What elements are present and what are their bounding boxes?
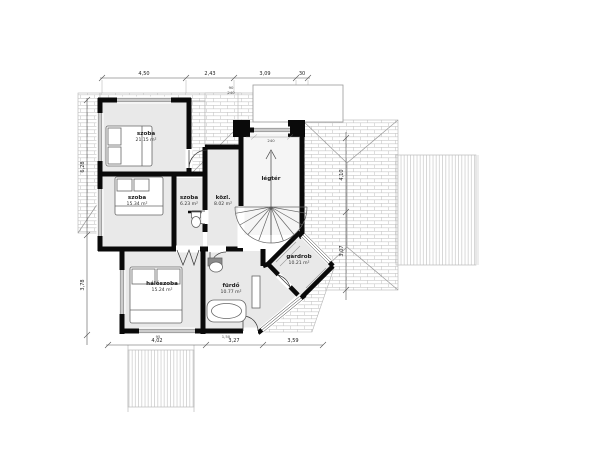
right-terrace xyxy=(396,155,476,265)
floor-plan-drawing: szoba 21.15 m² szoba 15.34 m² szoba 6.23… xyxy=(0,0,600,455)
dim-top-1: 4,50 xyxy=(138,71,149,77)
label-kozl-name: közl. xyxy=(216,195,231,201)
roof-dormer-side xyxy=(238,93,253,122)
label-legter-name: légtér xyxy=(262,175,281,182)
label-szoba1-name: szoba xyxy=(137,131,155,137)
dim-right-2: 3,07 xyxy=(339,245,345,256)
vanity-furdo xyxy=(208,258,223,272)
toilet-wc xyxy=(192,212,201,228)
bottom-terrace xyxy=(128,350,194,407)
dim-top-3: 3,09 xyxy=(259,71,270,77)
dim-bottom-3: 3,59 xyxy=(287,338,298,344)
label-szoba2-name: szoba xyxy=(128,195,146,201)
window-szoba1-left xyxy=(97,113,104,161)
label-kozl-area: 8.02 m² xyxy=(214,201,232,207)
dim-top-4: 30 xyxy=(299,71,305,77)
label-haloszoba-area: 15.24 m² xyxy=(152,287,173,293)
label-haloszoba-name: hálószoba xyxy=(146,280,178,287)
wall-pillar-right xyxy=(288,120,305,137)
label-szoba3-name: szoba xyxy=(180,195,198,201)
dim-top-2: 2,43 xyxy=(204,71,215,77)
dim-left-2: 3,78 xyxy=(80,279,86,290)
label-furdo-name: fürdő xyxy=(222,283,239,289)
label-gardrob-name: gardrob xyxy=(286,254,311,260)
floor-plan-canvas: szoba 21.15 m² szoba 15.34 m² szoba 6.23… xyxy=(0,0,600,455)
room-legter xyxy=(243,132,300,235)
window-legter-top xyxy=(254,127,290,134)
roof-dormer xyxy=(253,85,343,122)
label-szoba1-area: 21.15 m² xyxy=(136,137,157,143)
label-szoba3-area: 6.23 m² xyxy=(180,201,198,207)
window-szoba2-left xyxy=(97,189,104,236)
bathtub xyxy=(207,300,246,322)
radiator xyxy=(252,276,260,308)
window-szoba1-top xyxy=(117,97,171,104)
mark-legter-window: 240 xyxy=(267,138,275,143)
dim-right-1: 4,10 xyxy=(339,169,345,180)
window-haloszoba-bottom xyxy=(139,328,195,335)
window-haloszoba-left xyxy=(119,270,126,314)
mark-bottom-window-2: 1,50 xyxy=(222,334,231,339)
label-gardrob-area: 10.21 m² xyxy=(289,260,310,266)
dim-left-1: 6,28 xyxy=(80,161,86,172)
label-szoba2-area: 15.34 m² xyxy=(127,201,148,207)
mark-window-height: 240 xyxy=(227,90,235,95)
mark-bottom-window-1: 95 xyxy=(156,334,161,339)
wall-pillar-left xyxy=(233,120,250,137)
label-furdo-area: 10.77 m² xyxy=(221,289,242,295)
bed-haloszoba xyxy=(130,267,182,323)
